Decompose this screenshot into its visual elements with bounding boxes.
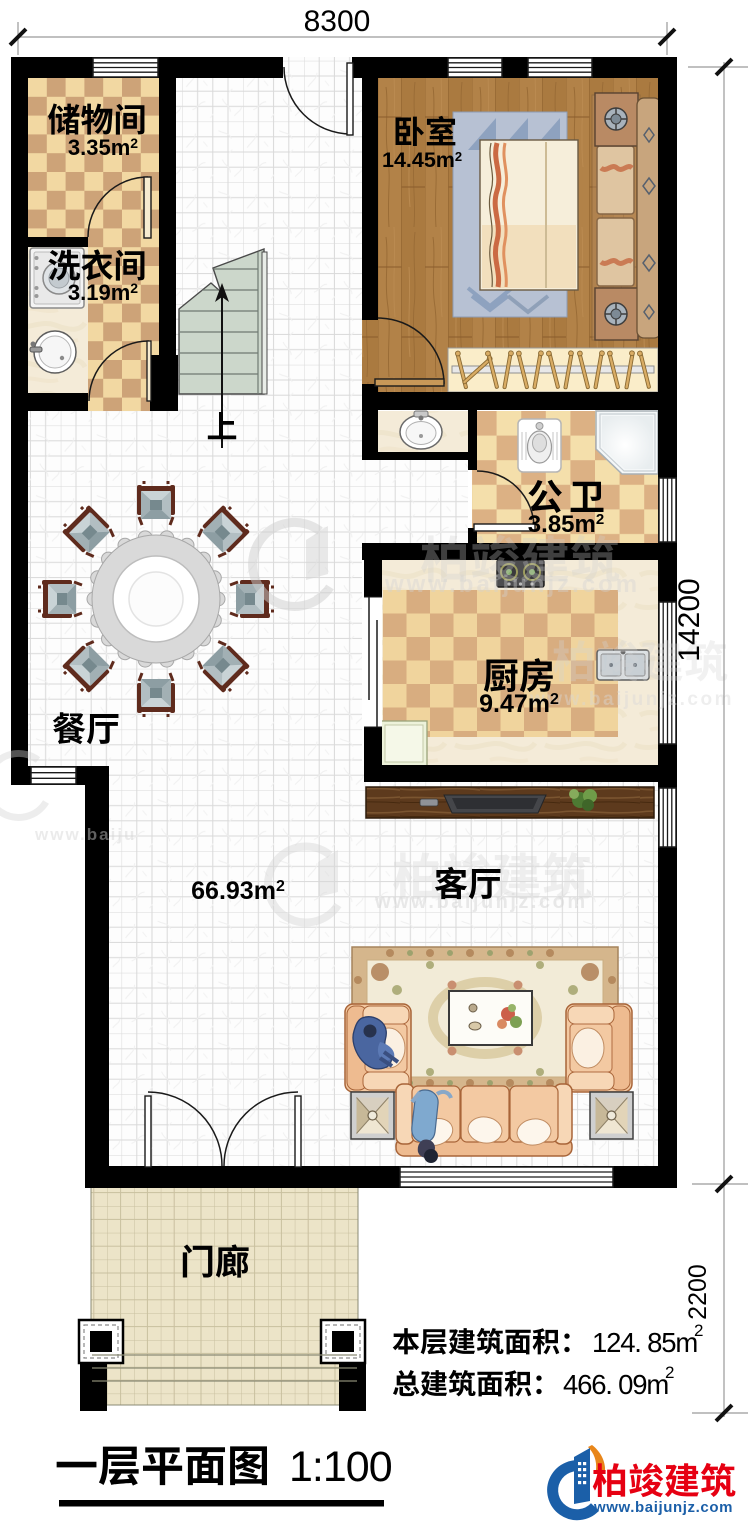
svg-text:66.93m2: 66.93m2 (191, 877, 285, 905)
svg-text:9.47m2: 9.47m2 (479, 690, 559, 718)
svg-text:14.45m2: 14.45m2 (382, 148, 462, 172)
svg-text:www.baijunjz.com: www.baijunjz.com (593, 1499, 733, 1516)
svg-text:2: 2 (665, 1363, 674, 1382)
svg-text:2200: 2200 (684, 1264, 712, 1320)
svg-text:www.baijunjz.com: www.baijunjz.com (374, 891, 588, 913)
svg-text:3.19m2: 3.19m2 (68, 280, 138, 305)
svg-text:www.baijunjz.com: www.baijunjz.com (384, 571, 640, 598)
svg-text:124. 85m: 124. 85m (592, 1327, 697, 1358)
svg-text:1:100: 1:100 (289, 1443, 392, 1491)
svg-text:www.baiju: www.baiju (34, 825, 136, 844)
svg-text:www.baijunjz.com: www.baijunjz.com (529, 689, 734, 710)
svg-text:3.35m2: 3.35m2 (68, 135, 138, 160)
svg-text:8300: 8300 (304, 5, 371, 38)
svg-text:2: 2 (694, 1321, 703, 1340)
svg-text:14200: 14200 (673, 578, 706, 661)
svg-text:466. 09m: 466. 09m (563, 1369, 668, 1400)
svg-text:3.85m2: 3.85m2 (528, 511, 604, 538)
